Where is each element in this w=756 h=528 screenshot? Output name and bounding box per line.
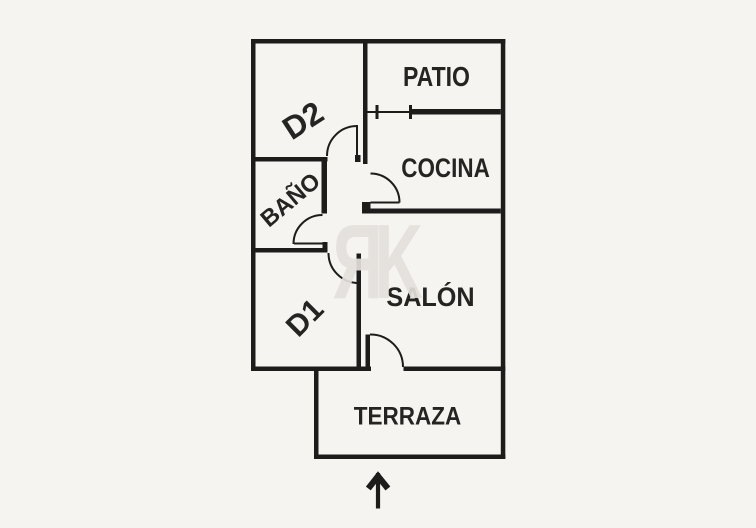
svg-text:K: K: [375, 202, 423, 320]
svg-text:TERRAZA: TERRAZA: [354, 402, 461, 430]
svg-text:PATIO: PATIO: [403, 62, 470, 93]
svg-text:COCINA: COCINA: [401, 154, 490, 183]
